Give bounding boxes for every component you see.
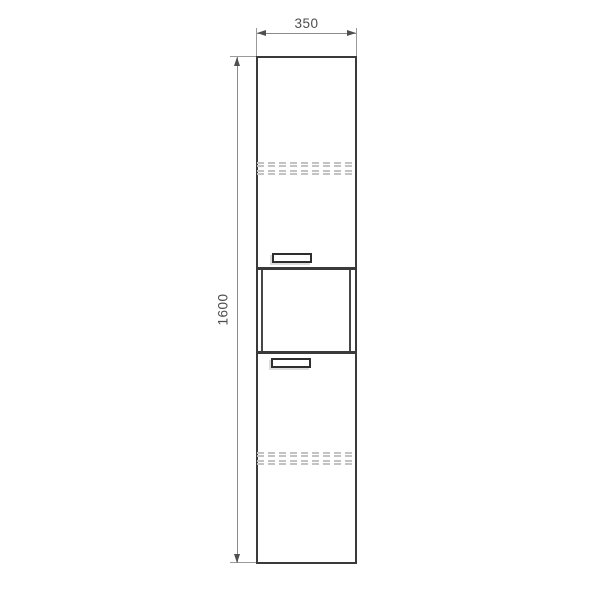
hidden-shelf-line — [257, 173, 356, 175]
width-dimension-line — [257, 33, 356, 34]
niche-top-edge — [256, 267, 357, 270]
cabinet-outline — [256, 56, 357, 564]
width-dimension-label: 350 — [257, 16, 356, 31]
upper-door-handle — [272, 253, 312, 263]
hidden-shelf-line — [257, 165, 356, 167]
height-dimension-line — [237, 57, 238, 563]
hidden-shelf-line — [257, 452, 356, 454]
lower-door-handle — [271, 358, 311, 368]
hidden-shelf-line — [257, 463, 356, 465]
hidden-shelf-line — [257, 460, 356, 462]
arrowhead-down-icon — [234, 554, 240, 563]
hidden-shelf-line — [257, 162, 356, 164]
niche-right-panel-line — [349, 270, 351, 351]
technical-drawing-canvas: 350 1600 — [0, 0, 600, 600]
arrowhead-up-icon — [234, 57, 240, 66]
niche-bottom-edge — [256, 351, 357, 354]
hidden-shelf-line — [257, 455, 356, 457]
niche-left-panel-line — [261, 270, 263, 351]
width-extension-line-right — [356, 28, 357, 56]
hidden-shelf-line — [257, 170, 356, 172]
height-dimension-label: 1600 — [216, 280, 231, 340]
